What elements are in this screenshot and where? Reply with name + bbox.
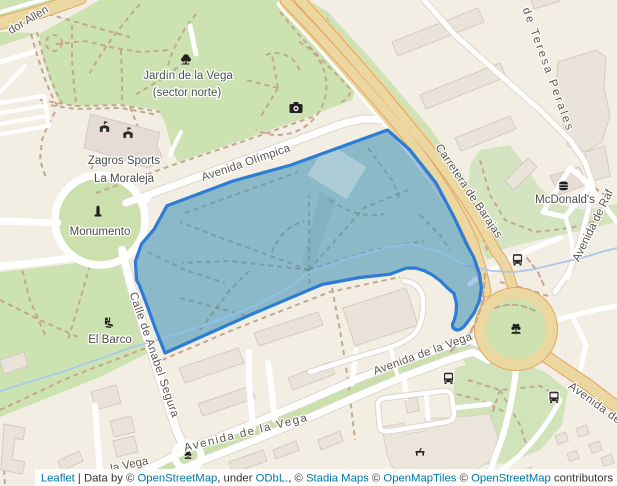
svg-text:La Moraleja: La Moraleja — [94, 173, 155, 185]
svg-text:Leaflet | Data by © OpenStreet: Leaflet | Data by © OpenStreetMap, under… — [41, 473, 613, 485]
svg-text:Monumento: Monumento — [70, 226, 131, 238]
svg-text:McDonald's: McDonald's — [535, 194, 595, 206]
svg-text:El Barco: El Barco — [88, 334, 131, 346]
svg-text:(sector norte): (sector norte) — [153, 87, 222, 99]
svg-text:Jardín de la Vega: Jardín de la Vega — [143, 70, 233, 82]
svg-text:Zagros Sports: Zagros Sports — [88, 155, 160, 167]
